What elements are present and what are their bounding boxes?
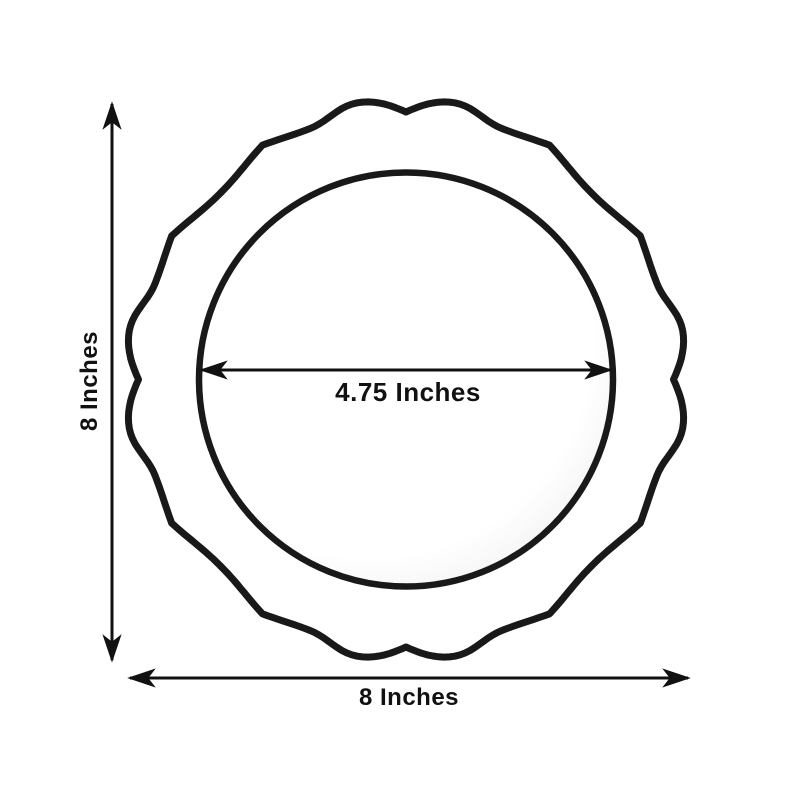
diagram-canvas: 8 Inches 8 Inches 4.75 Inches [0,0,800,800]
width-dimension-label: 8 Inches [359,684,459,711]
diameter-dimension-label: 4.75 Inches [335,377,481,407]
plate-dimension-diagram: 8 Inches 8 Inches 4.75 Inches [0,0,800,800]
height-dimension-label: 8 Inches [76,331,103,431]
